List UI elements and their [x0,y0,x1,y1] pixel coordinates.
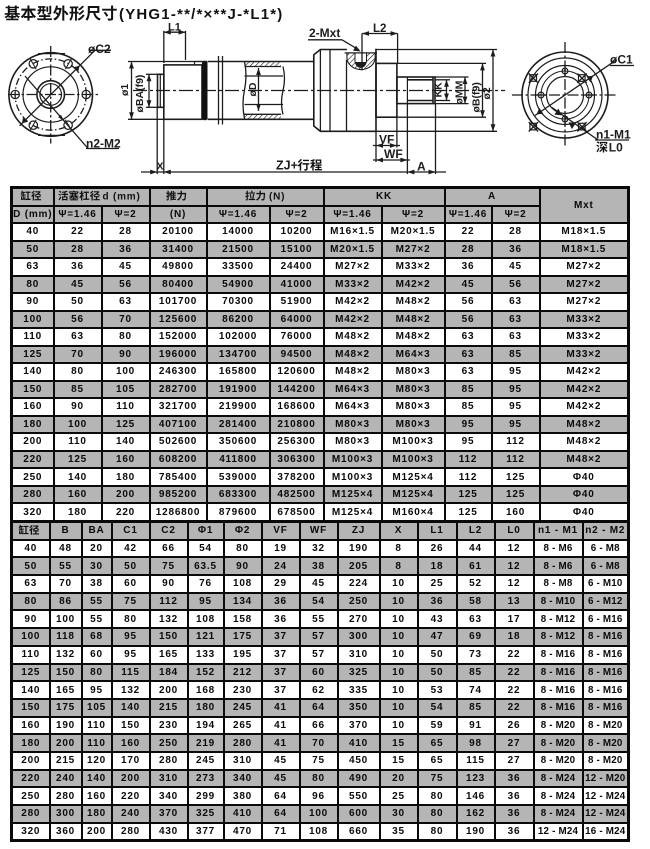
svg-text:(YHG1-**/*×**J-*L1*): (YHG1-**/*×**J-*L1*) [119,6,283,23]
svg-text:ø1: ø1 [119,84,131,96]
svg-text:øBA(f9): øBA(f9) [134,75,146,113]
svg-text:øB(f9): øB(f9) [471,82,483,112]
svg-text:øC2: øC2 [88,42,111,56]
svg-text:VF: VF [379,133,394,147]
svg-text:n1-M1: n1-M1 [596,128,631,142]
svg-text:L0: L0 [609,141,623,155]
svg-text:øMM: øMM [454,80,466,104]
svg-text:L2: L2 [373,23,386,35]
svg-text:ø2: ø2 [481,87,493,99]
svg-text:øC1: øC1 [610,53,633,67]
svg-text:n2-M2: n2-M2 [86,137,121,151]
svg-text:X: X [157,161,164,173]
svg-text:KK: KK [433,82,445,98]
svg-text:øD: øD [247,82,259,96]
svg-text:2-Mxt: 2-Mxt [309,26,340,40]
svg-text:L1: L1 [168,22,181,34]
svg-text:A: A [417,160,426,174]
svg-text:ZJ+: ZJ+ [276,159,298,173]
svg-text:WF: WF [384,147,403,161]
